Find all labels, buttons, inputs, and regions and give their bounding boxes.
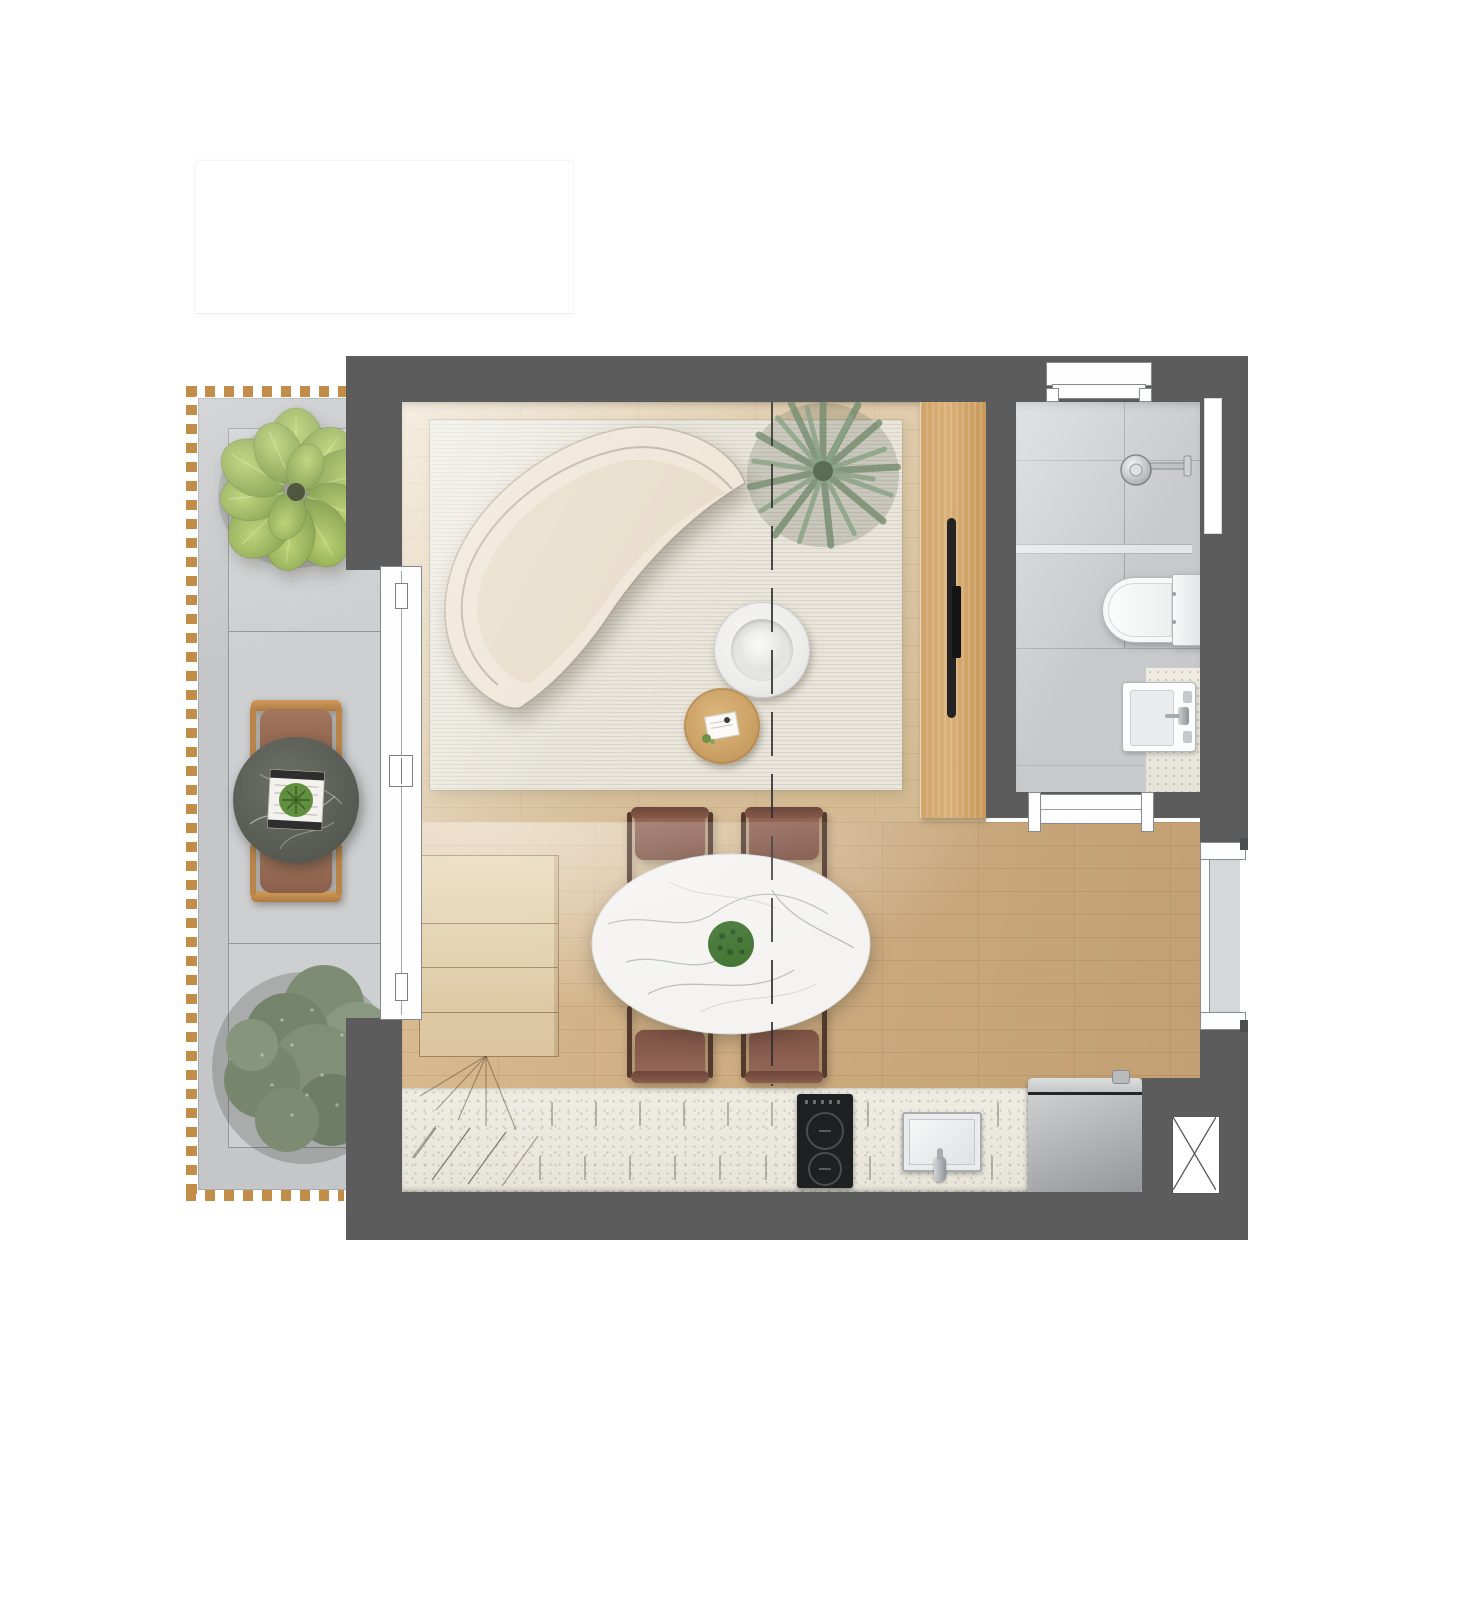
door-rail-stop <box>395 973 408 1001</box>
toilet-seat-hinge <box>1172 620 1176 624</box>
refrigerator <box>1028 1078 1142 1192</box>
dining-window-glazing <box>1206 856 1240 1014</box>
toilet <box>1102 574 1202 644</box>
sideboard-cabinet <box>420 856 558 1056</box>
window-bracket <box>1240 838 1248 850</box>
fridge-hinge <box>1112 1070 1130 1084</box>
balcony-boundary-dashed-bottom <box>186 1190 344 1201</box>
wall-left-lower <box>346 1018 402 1192</box>
wall-left-upper <box>346 356 402 570</box>
vanity-basin <box>1130 690 1174 746</box>
vanity-sink <box>1122 682 1196 752</box>
toilet-tank <box>1172 574 1202 646</box>
marble-coffee-table <box>714 602 810 698</box>
coffee-table-tray <box>731 619 793 681</box>
soap-dispenser <box>1183 691 1192 703</box>
floor-plan-canvas <box>0 0 1472 1600</box>
bathroom-top-window-sill <box>1052 384 1146 399</box>
ventilation-shaft <box>1172 1116 1220 1194</box>
door-leaf-line <box>1035 809 1147 810</box>
shower-glass-partition <box>1016 544 1192 554</box>
kitchen-faucet <box>934 1156 946 1182</box>
door-jamb <box>1141 792 1154 832</box>
coffee-table-bowl <box>740 628 784 672</box>
wardrobe-panel <box>920 402 986 818</box>
dining-window-jamb <box>1200 858 1210 1014</box>
balcony-floor-joint <box>229 943 392 944</box>
balcony-floor-joint <box>229 631 392 632</box>
blank-title-card <box>195 160 574 314</box>
wall-bottom <box>346 1192 1248 1240</box>
book-ornament <box>724 717 731 724</box>
bathroom-top-window <box>1046 362 1152 386</box>
bathroom-wall-niche-window <box>1204 398 1222 534</box>
vanity-spout <box>1165 714 1180 718</box>
wardrobe-handle-bar <box>952 586 961 658</box>
tile-grout <box>1016 648 1200 649</box>
cooktop-burner <box>806 1112 844 1150</box>
section-cut-line <box>771 402 773 1086</box>
balcony-sliding-door <box>380 566 422 1020</box>
window-jamb <box>1139 388 1152 402</box>
bistro-table <box>230 734 362 866</box>
table-centerpiece-plant <box>708 921 754 967</box>
wood-coffee-table <box>684 688 760 764</box>
window-jamb <box>1046 388 1059 402</box>
toilet-seat-hinge <box>1172 592 1176 596</box>
bathroom-door <box>1034 794 1148 824</box>
oval-dining-table <box>590 852 872 1036</box>
wall-bathroom-partition <box>986 402 1016 792</box>
toilet-bowl <box>1102 577 1178 643</box>
door-jamb <box>1028 792 1041 832</box>
living-room-fern-plant <box>733 383 913 561</box>
fridge-door-seam <box>1028 1092 1142 1095</box>
door-rail-stop <box>395 583 408 609</box>
soap-dispenser <box>1183 731 1192 743</box>
induction-cooktop <box>797 1094 853 1188</box>
cooktop-controls <box>805 1100 845 1104</box>
flower-sprig <box>702 734 711 743</box>
cooktop-burner <box>808 1152 842 1186</box>
curved-sofa <box>420 405 760 725</box>
shower-head <box>1100 444 1192 496</box>
window-bracket <box>1240 1020 1248 1032</box>
sliding-door-handle <box>389 755 413 787</box>
